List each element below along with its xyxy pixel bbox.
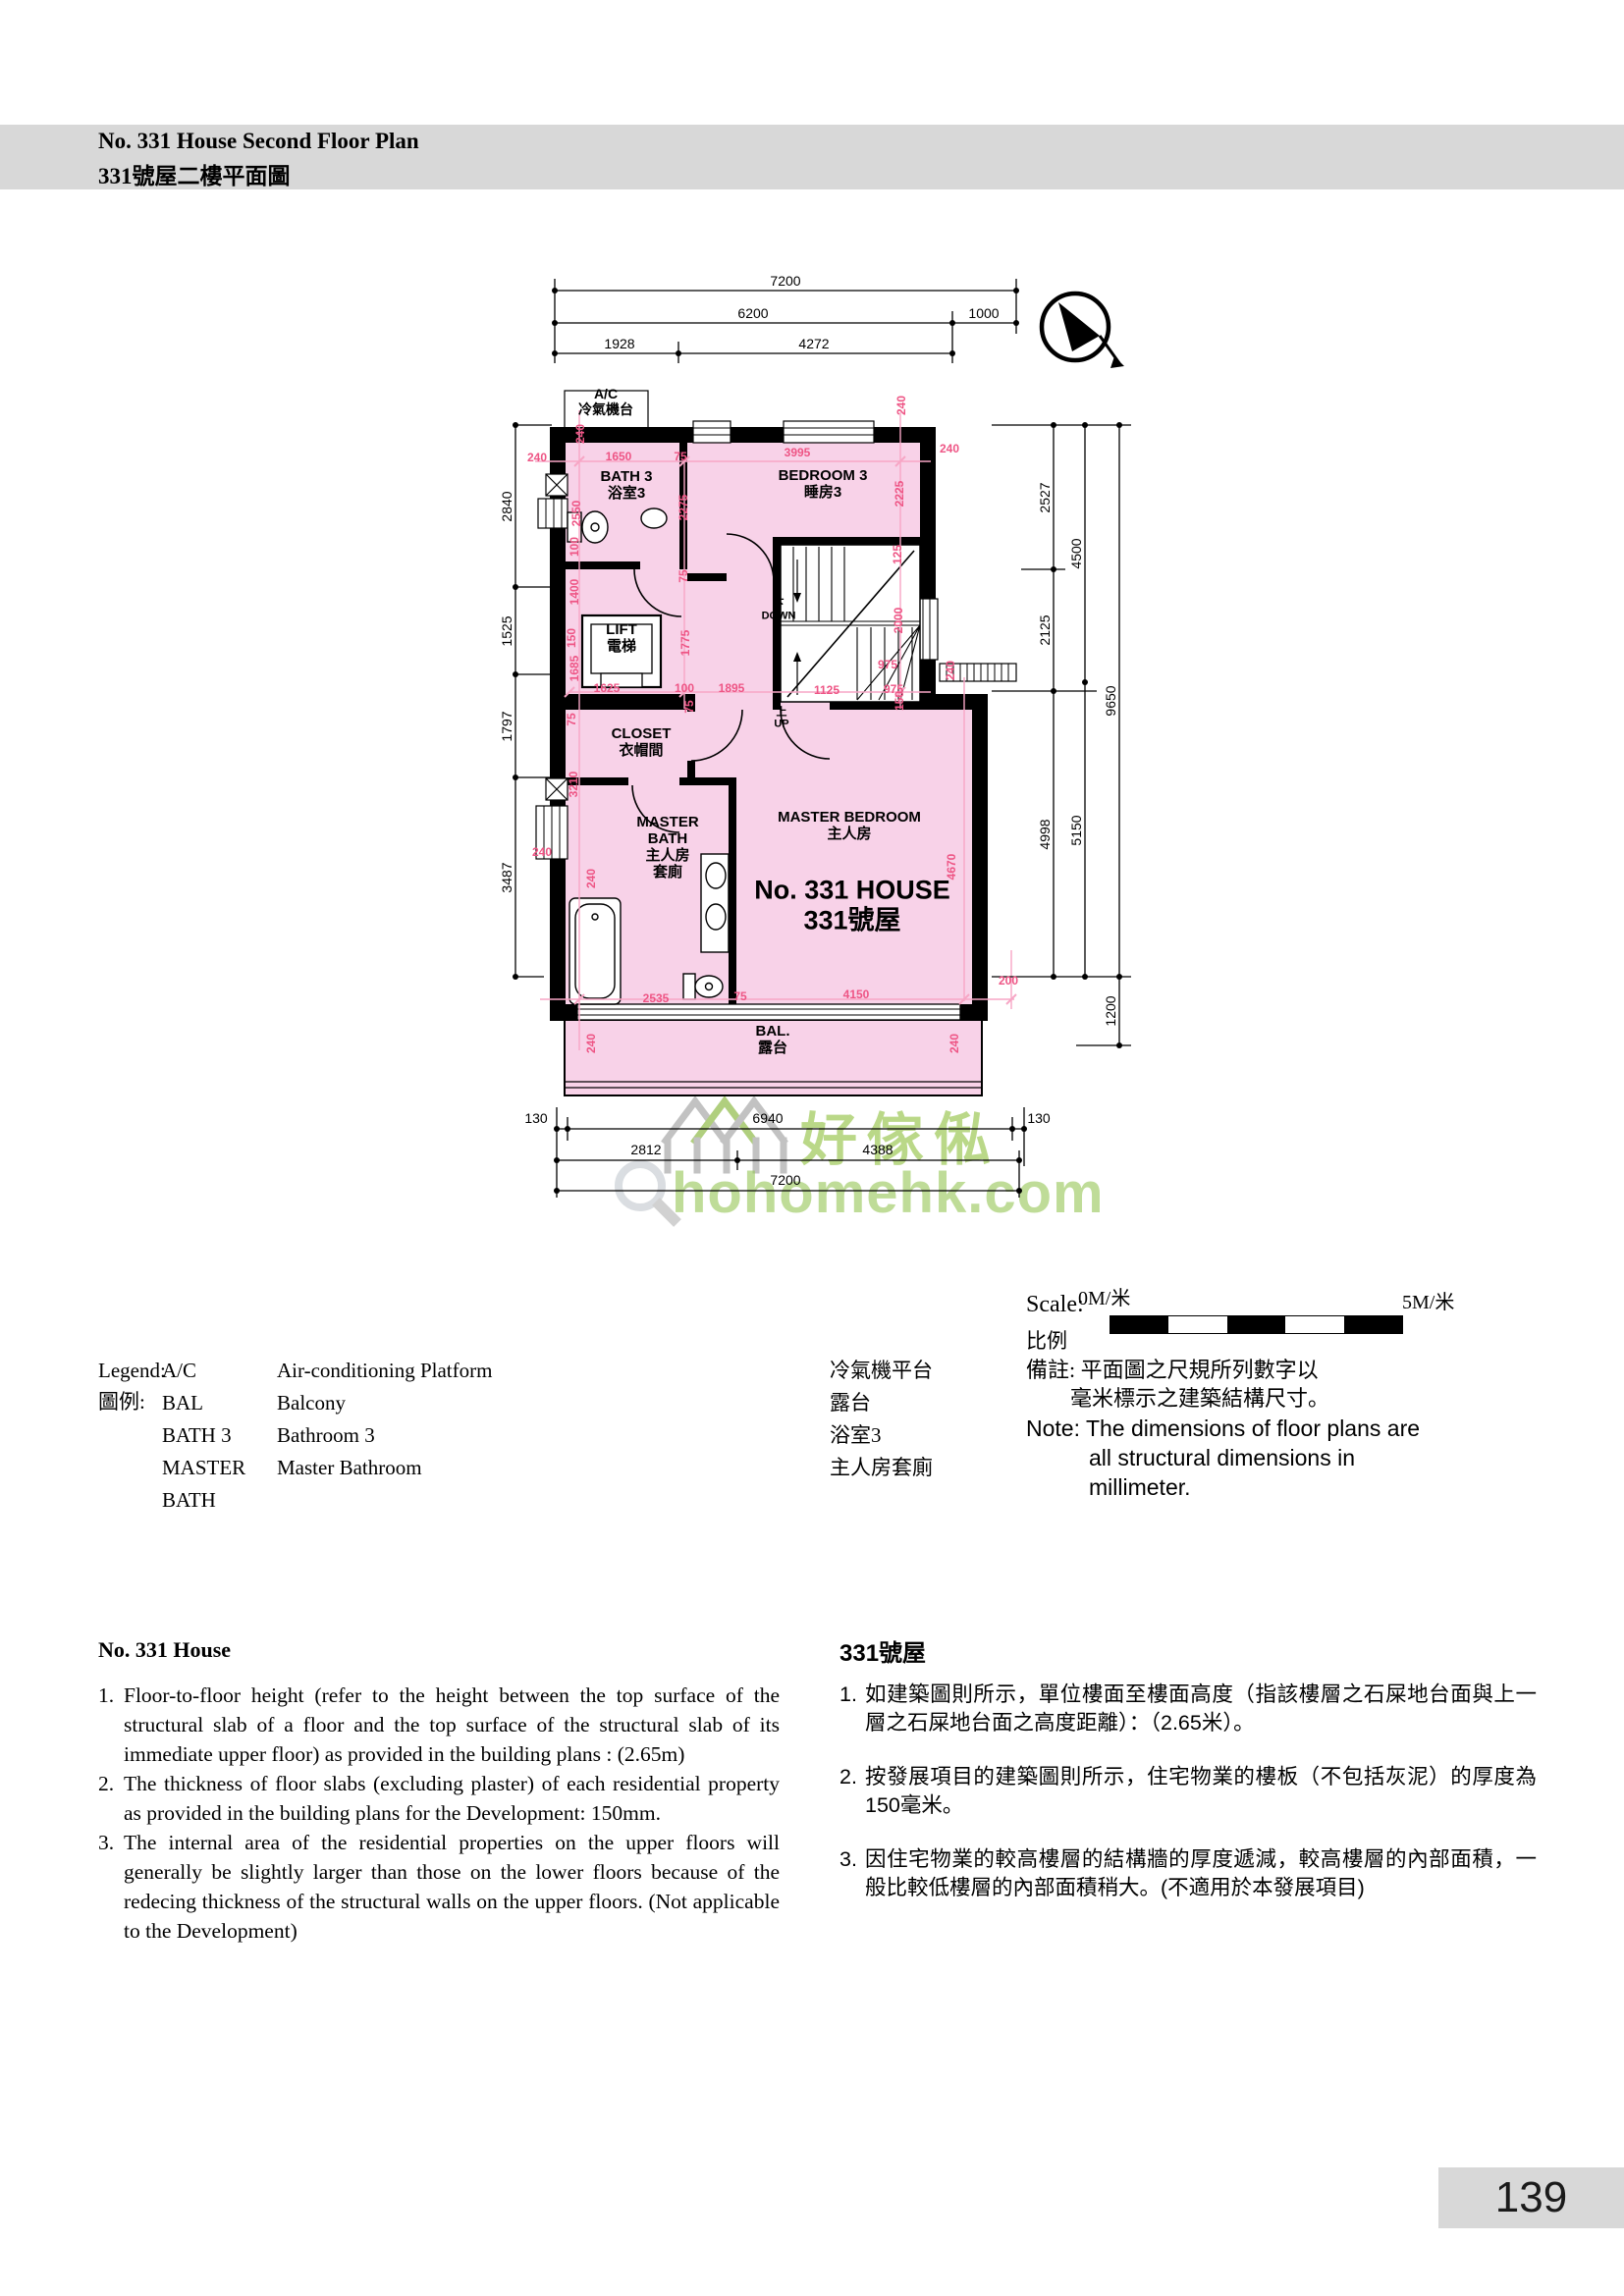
dimension-label: 240 — [940, 442, 959, 455]
dimension-label: 2527 — [1037, 482, 1053, 512]
dimension-label: 4272 — [798, 336, 829, 351]
dimension-label: 240 — [527, 451, 547, 464]
dimension-label: 2535 — [643, 991, 670, 1005]
dimension-label: 200 — [999, 974, 1018, 988]
ac-platform-label: A/C冷氣機台 — [578, 387, 633, 418]
dimension-label: 4500 — [1068, 538, 1084, 568]
dimension-label: 2225 — [893, 481, 906, 507]
dimension-label: 1928 — [604, 336, 634, 351]
notes-english: 1.Floor-to-floor height (refer to the he… — [98, 1681, 780, 1946]
dimension-label: 240 — [573, 424, 587, 444]
dimension-label: 2840 — [499, 491, 514, 521]
balcony-label: BAL.露台 — [756, 1024, 790, 1057]
dimension-label: 125 — [891, 545, 904, 564]
notes-chinese: 1.如建築圖則所示，單位樓面至樓面高度（指該樓層之石屎地台面與上一層之石屎地台面… — [839, 1681, 1537, 1928]
dimension-label: 240 — [894, 396, 908, 415]
note-item: 2.按發展項目的建築圖則所示，住宅物業的樓板（不包括灰泥）的厚度為150毫米。 — [839, 1763, 1537, 1820]
dimension-label: 2275 — [677, 495, 690, 521]
scale-end-value: 5M/米 — [1402, 1286, 1454, 1314]
note-chinese-line2: 毫米標示之建築結構尺寸。 — [1070, 1381, 1329, 1413]
dimension-label: 9650 — [1103, 685, 1118, 716]
bath3-label: BATH 3浴室3 — [600, 469, 652, 503]
dimension-label: 2812 — [630, 1142, 661, 1157]
floor-plan: 7200620010001928427228401525179734872527… — [481, 265, 1168, 1266]
dimension-label: 3995 — [785, 446, 811, 459]
page-title: No. 331 House Second Floor Plan — [98, 129, 419, 154]
dimension-label: 75 — [733, 989, 746, 1003]
dimension-label: 3210 — [567, 772, 580, 798]
lift-label: LIFT電梯 — [606, 622, 637, 656]
dimension-label: 240 — [584, 1034, 598, 1053]
dimension-label: 1895 — [719, 681, 745, 695]
dimension-label: 4998 — [1037, 819, 1053, 849]
dimension-label: 240 — [532, 845, 552, 859]
master-bedroom-label: MASTER BEDROOM主人房 — [778, 810, 921, 843]
note-chinese-line1: 備註: 平面圖之尺規所列數字以 — [1026, 1353, 1319, 1384]
dimension-label: 7200 — [770, 273, 800, 289]
dimension-label: 240 — [944, 661, 957, 680]
note-item: 3.因住宅物業的較高樓層的結構牆的厚度遞減，較高樓層的內部面積，一般比較低樓層的… — [839, 1845, 1537, 1902]
dimension-label: 240 — [584, 869, 598, 888]
scale-start-value: 0M/米 — [1078, 1282, 1130, 1310]
dimension-label: 6200 — [737, 305, 768, 321]
dimension-label: 1400 — [568, 579, 581, 606]
dimension-label: 6940 — [752, 1110, 783, 1126]
dimension-label: 2125 — [1037, 614, 1053, 645]
dimension-label: 1125 — [814, 683, 839, 697]
dimension-label: 1775 — [678, 630, 692, 657]
page-number: 139 — [1495, 2173, 1567, 2222]
dimension-label: 7200 — [770, 1172, 800, 1188]
dimension-label: 100 — [675, 681, 694, 695]
legend-rows: A/CAir-conditioning Platform冷氣機平台BALBalc… — [162, 1355, 1001, 1517]
dimension-label: 150 — [565, 628, 578, 648]
closet-label: CLOSET衣帽間 — [612, 726, 672, 760]
dimension-label: 3487 — [499, 862, 514, 892]
master-bath-label: MASTERBATH主人房套廁 — [636, 815, 698, 881]
brochure-page: { "header": { "title": "No. 331 House Se… — [0, 0, 1624, 2296]
legend-row: MASTER BATHMaster Bathroom主人房套廁 — [162, 1452, 1001, 1517]
scale-label: Scale: — [1026, 1292, 1084, 1318]
page-number-band: 139 — [1438, 2167, 1624, 2228]
bedroom3-label: BEDROOM 3睡房3 — [779, 468, 868, 502]
north-arrow-icon — [1042, 294, 1124, 368]
dimension-label: 130 — [524, 1110, 547, 1126]
dimension-label: 100 — [568, 537, 581, 557]
dimension-label: 75 — [565, 713, 578, 725]
house-number-label: No. 331 HOUSE331號屋 — [754, 876, 950, 935]
dimension-label: 240 — [947, 1034, 961, 1053]
dimension-label: 75 — [674, 450, 686, 463]
stair-up-label: 上UP — [774, 707, 788, 731]
note-item: 3.The internal area of the residential p… — [98, 1828, 780, 1946]
dimension-label: 2550 — [569, 501, 583, 527]
note-item: 1.Floor-to-floor height (refer to the he… — [98, 1681, 780, 1769]
dimension-label: 4388 — [862, 1142, 893, 1157]
scale-bar — [1110, 1315, 1403, 1334]
scale-label-chinese: 比例 — [1026, 1325, 1067, 1355]
dimension-label: 4150 — [843, 988, 870, 1001]
note-item: 2.The thickness of floor slabs (excludin… — [98, 1769, 780, 1828]
dimension-label: 130 — [1027, 1110, 1050, 1126]
header-band: No. 331 House Second Floor Plan 331號屋二樓平… — [0, 125, 1624, 189]
dimension-label: 975 — [884, 682, 903, 696]
dimension-label: 1000 — [968, 305, 999, 321]
stair-down-label: 下DOWN — [762, 599, 796, 623]
dimension-label: 1797 — [499, 711, 514, 741]
dimension-label: 1525 — [499, 615, 514, 646]
dimension-label: 75 — [677, 569, 690, 582]
dimension-label: 975 — [878, 658, 897, 671]
page-title-chinese: 331號屋二樓平面圖 — [98, 157, 291, 190]
scale-and-note: Scale: 比例 0M/米 5M/米 備註: 平面圖之尺規所列數字以 毫米標示… — [1021, 1276, 1591, 1502]
legend-heading: Legend: 圖例: — [98, 1355, 166, 1417]
notes-title-english: No. 331 House — [98, 1637, 231, 1663]
legend-row: A/CAir-conditioning Platform冷氣機平台 — [162, 1355, 1001, 1387]
dimension-label: 1200 — [1103, 995, 1118, 1026]
dimension-label: 1685 — [568, 656, 581, 682]
dimension-label: 2000 — [892, 608, 905, 634]
legend-row: BATH 3Bathroom 3浴室3 — [162, 1419, 1001, 1452]
note-item: 1.如建築圖則所示，單位樓面至樓面高度（指該樓層之石屎地台面與上一層之石屎地台面… — [839, 1681, 1537, 1737]
notes-title-chinese: 331號屋 — [839, 1633, 926, 1668]
dimension-label: 1625 — [594, 681, 621, 695]
dimension-label: 1650 — [606, 450, 632, 463]
note-english: Note: The dimensions of floor plans are … — [1026, 1414, 1420, 1502]
dimension-label: 5150 — [1068, 815, 1084, 845]
legend-row: BALBalcony露台 — [162, 1387, 1001, 1419]
dimension-label: 75 — [682, 700, 696, 713]
